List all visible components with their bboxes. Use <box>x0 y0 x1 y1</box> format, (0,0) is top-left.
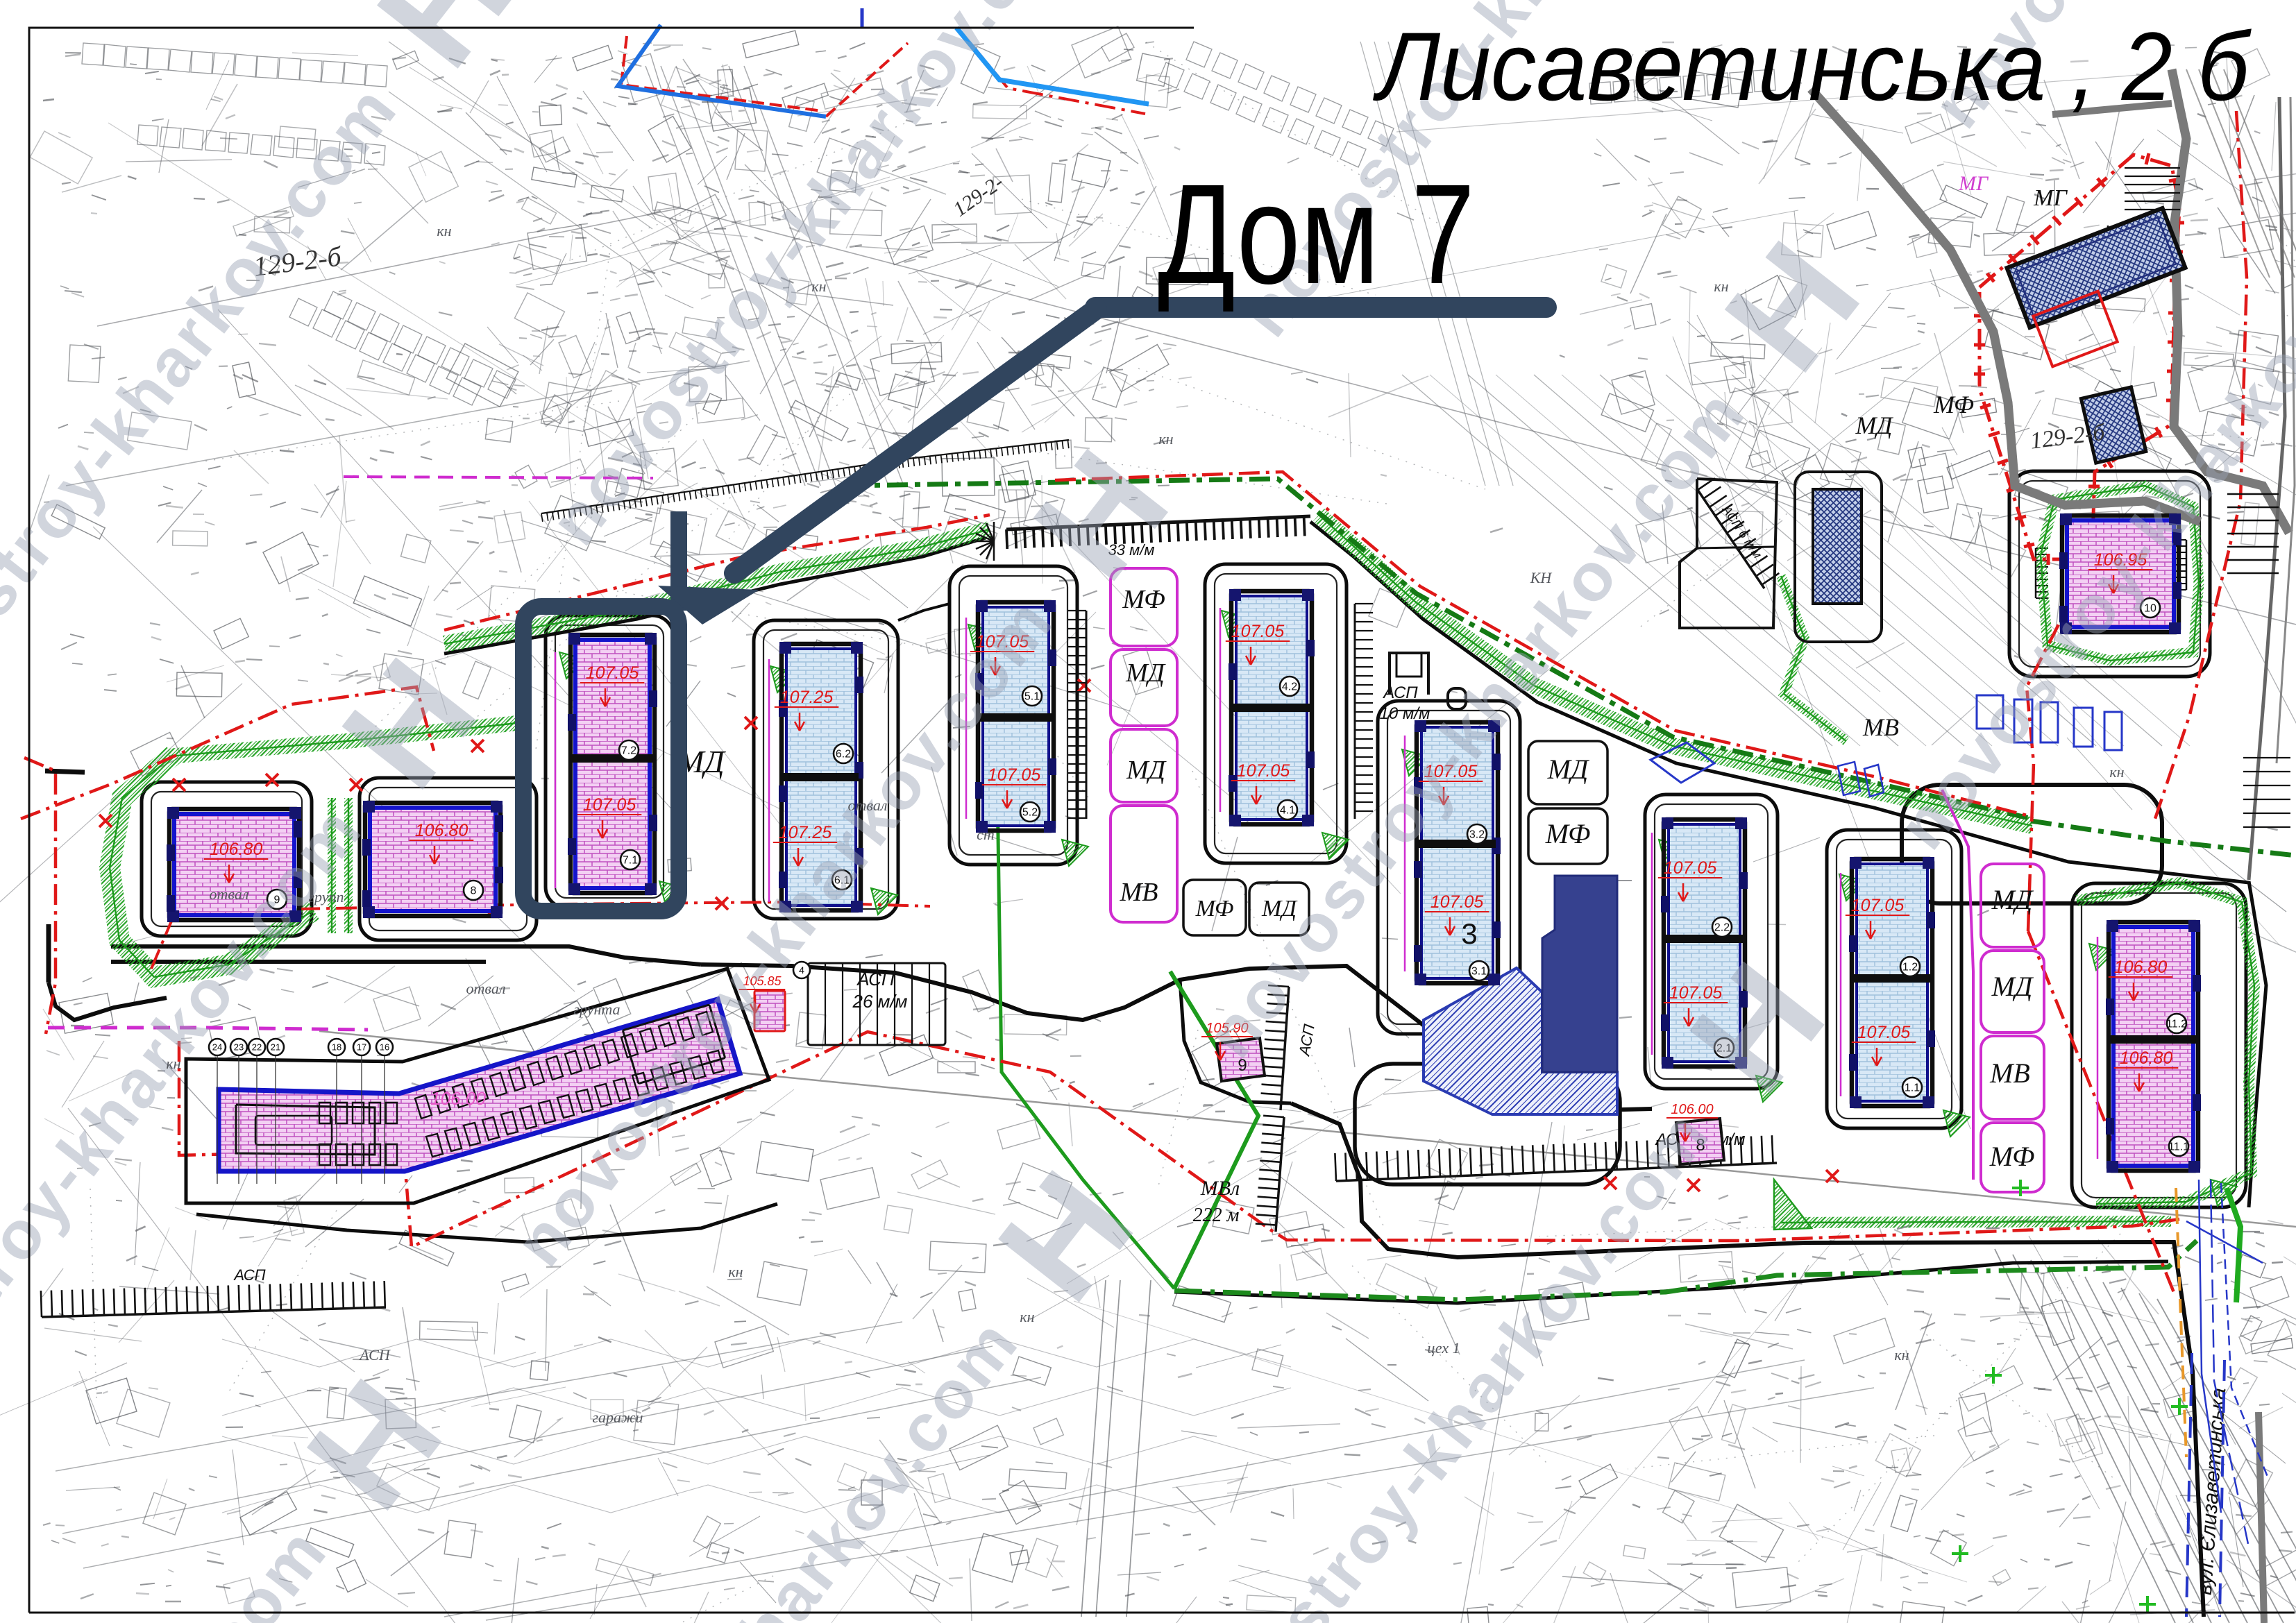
svg-text:3: 3 <box>1461 917 1477 950</box>
svg-text:МФ: МФ <box>1545 818 1591 849</box>
svg-text:11.2: 11.2 <box>2166 1018 2187 1030</box>
svg-text:22: 22 <box>252 1042 262 1052</box>
svg-text:АСП: АСП <box>856 969 895 989</box>
svg-text:16: 16 <box>380 1042 389 1052</box>
svg-text:кн: кн <box>2109 763 2124 781</box>
svg-text:7.2: 7.2 <box>621 745 636 756</box>
svg-text:17: 17 <box>357 1042 366 1052</box>
svg-text:кн: кн <box>1158 430 1173 448</box>
svg-text:7.1: 7.1 <box>623 854 638 866</box>
svg-text:106.80: 106.80 <box>2120 1048 2173 1068</box>
svg-text:МД: МД <box>1855 411 1894 439</box>
svg-text:1.1: 1.1 <box>1905 1082 1920 1094</box>
svg-text:3.2: 3.2 <box>1469 829 1485 840</box>
svg-text:цех 1: цех 1 <box>1427 1339 1460 1357</box>
svg-text:8: 8 <box>471 885 477 897</box>
svg-text:106.80: 106.80 <box>210 840 263 859</box>
svg-text:107.05: 107.05 <box>988 765 1041 785</box>
svg-text:АСП: АСП <box>358 1346 391 1363</box>
svg-text:107.05: 107.05 <box>1664 858 1717 878</box>
svg-text:3.1: 3.1 <box>1471 965 1487 977</box>
svg-text:26 м/м: 26 м/м <box>852 991 907 1012</box>
svg-text:кн: кн <box>437 222 451 239</box>
svg-text:АСП: АСП <box>1382 683 1418 702</box>
svg-text:23: 23 <box>234 1042 244 1052</box>
svg-text:МВл: МВл <box>1200 1177 1240 1200</box>
svg-text:МВ: МВ <box>1120 878 1158 907</box>
svg-text:МВ: МВ <box>1862 713 1899 741</box>
svg-text:гаражи: гаражи <box>592 1409 643 1426</box>
svg-text:107.05: 107.05 <box>1851 896 1905 915</box>
svg-text:4.2: 4.2 <box>1282 681 1297 692</box>
svg-text:4.1: 4.1 <box>1280 804 1295 816</box>
svg-text:отвал: отвал <box>210 885 249 903</box>
svg-text:МФ: МФ <box>1933 391 1974 418</box>
svg-text:1.2: 1.2 <box>1902 961 1918 973</box>
svg-text:107.05: 107.05 <box>1430 892 1484 912</box>
svg-text:106.00: 106.00 <box>430 1088 486 1109</box>
svg-text:106.80: 106.80 <box>415 821 469 840</box>
svg-text:МФ: МФ <box>1989 1141 2035 1172</box>
svg-text:кн: кн <box>1020 1308 1034 1325</box>
svg-text:КН: КН <box>1530 569 1553 586</box>
svg-text:кн: кн <box>728 1263 743 1280</box>
svg-text:кн: кн <box>1714 278 1728 295</box>
svg-text:107.05: 107.05 <box>1231 622 1285 641</box>
svg-text:107.25: 107.25 <box>780 688 834 707</box>
svg-text:МД: МД <box>1991 884 2034 915</box>
svg-text:5.1: 5.1 <box>1024 690 1040 702</box>
svg-text:107.05: 107.05 <box>583 795 636 815</box>
svg-text:кн: кн <box>811 278 826 295</box>
svg-text:МГ: МГ <box>2033 185 2068 211</box>
svg-text:21: 21 <box>271 1042 280 1052</box>
svg-text:отвал: отвал <box>466 980 506 997</box>
svg-text:222 м: 222 м <box>1193 1205 1240 1226</box>
svg-text:кн: кн <box>1894 1346 1909 1363</box>
svg-text:107.05: 107.05 <box>1857 1023 1911 1042</box>
svg-text:групп: групп <box>308 888 344 906</box>
svg-text:ст: ст <box>977 826 995 843</box>
svg-text:6.2: 6.2 <box>836 748 851 760</box>
svg-text:МВ: МВ <box>1989 1057 2030 1089</box>
svg-text:отвал: отвал <box>848 797 888 814</box>
svg-text:11.1: 11.1 <box>2168 1141 2189 1153</box>
svg-text:МФ: МФ <box>1195 896 1234 921</box>
svg-text:Лисаветинська , 2 б: Лисаветинська , 2 б <box>1373 12 2252 121</box>
svg-text:107.05: 107.05 <box>586 663 639 683</box>
svg-text:грунта: грунта <box>573 1001 620 1018</box>
svg-text:10: 10 <box>2144 602 2156 614</box>
svg-text:МД: МД <box>1126 756 1167 785</box>
svg-text:106.80: 106.80 <box>2114 958 2168 977</box>
svg-text:МД: МД <box>1547 754 1590 785</box>
svg-text:кн: кн <box>166 1055 180 1072</box>
svg-text:АСП: АСП <box>233 1266 265 1284</box>
svg-text:МД: МД <box>1125 658 1166 688</box>
svg-text:МД: МД <box>1991 971 2034 1002</box>
svg-text:18: 18 <box>332 1042 341 1052</box>
svg-text:2.2: 2.2 <box>1714 921 1730 933</box>
svg-text:5.2: 5.2 <box>1022 806 1038 818</box>
svg-text:107.05: 107.05 <box>1237 761 1290 781</box>
svg-text:Дом 7: Дом 7 <box>1158 155 1475 314</box>
svg-text:МГ: МГ <box>1958 172 1989 195</box>
